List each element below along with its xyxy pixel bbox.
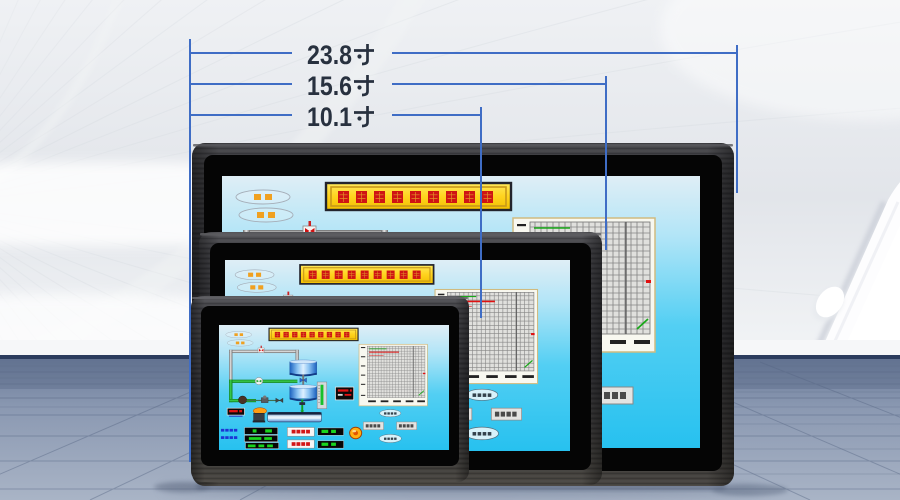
svg-text:15.6: 15.6 — [307, 71, 352, 101]
svg-text:23.8: 23.8 — [307, 40, 352, 70]
svg-text:10.1: 10.1 — [307, 102, 352, 132]
